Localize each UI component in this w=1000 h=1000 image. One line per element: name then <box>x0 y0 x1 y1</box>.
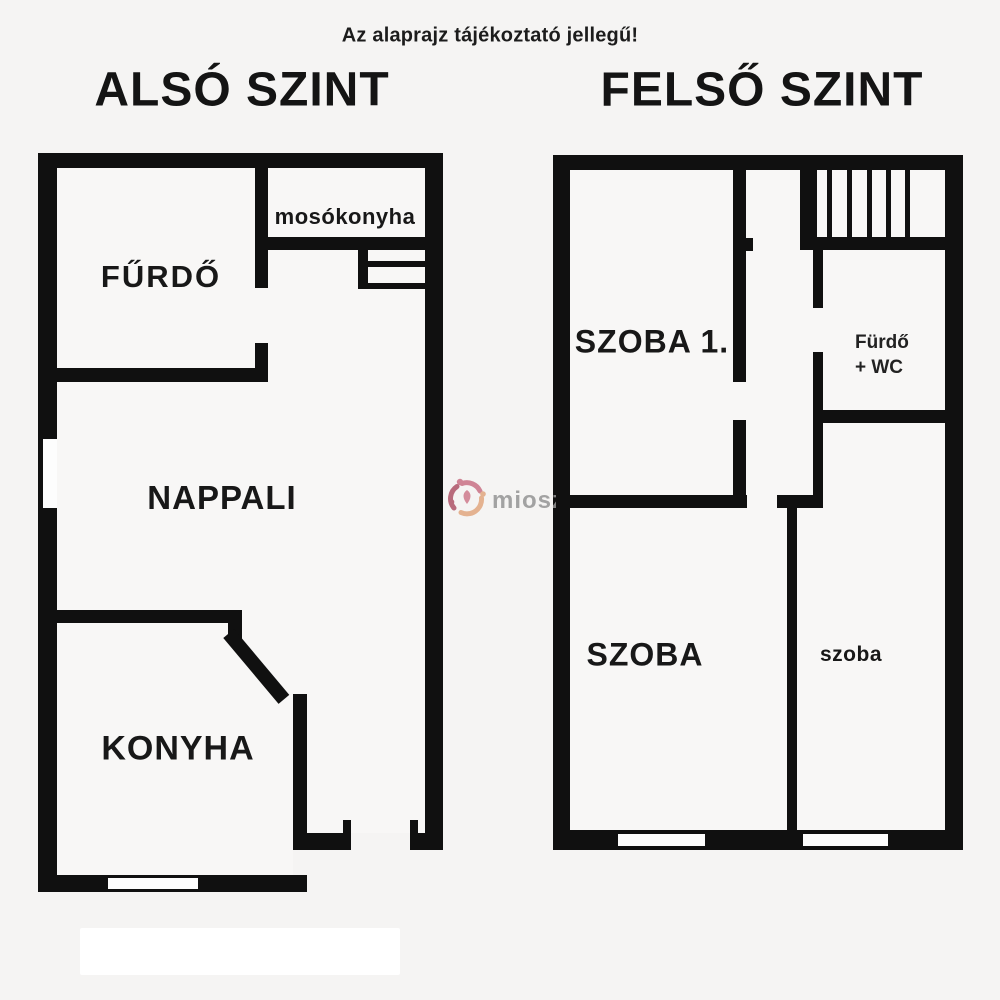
lower-floor-title: ALSÓ SZINT <box>94 63 389 118</box>
wall-stair-stub-lower <box>358 250 368 289</box>
wall-furdo-right-upper <box>255 168 268 288</box>
stair-line-2 <box>847 170 852 237</box>
wall-upper-top <box>553 155 963 170</box>
room-label-nappali: NAPPALI <box>147 479 296 517</box>
wall-corridor-bottom-left <box>553 495 747 508</box>
window-kitchen <box>108 878 198 889</box>
door-jamb-left <box>343 820 351 834</box>
stair-line-1 <box>827 170 832 237</box>
room-label-konyha: KONYHA <box>101 730 254 769</box>
lower-kitchen-interior <box>57 833 293 875</box>
room-label-szoba: SZOBA <box>587 637 704 674</box>
room-label-furdo-wc-line1: Fürdő <box>855 330 909 355</box>
stair-edge-wall <box>800 170 817 237</box>
wall-under-stairs <box>800 237 963 250</box>
wall-bath-left-upper <box>813 248 823 308</box>
stair-tread-line-1 <box>368 261 425 267</box>
stair-line-5 <box>905 170 910 237</box>
blank-label-box <box>80 928 400 975</box>
wall-upper-right <box>945 155 963 850</box>
room-label-furdo-wc-line2: + WC <box>855 355 909 380</box>
room-label-furdo: FŰRDŐ <box>101 259 221 295</box>
room-label-szoba1: SZOBA 1. <box>575 324 729 361</box>
floor-plan-image: Az alaprajz tájékoztató jellegű! ALSÓ SZ… <box>0 0 1000 1000</box>
wall-room-divider <box>787 508 797 830</box>
wall-lower-right <box>425 153 443 850</box>
room-label-mosokonyha: mosókonyha <box>275 204 416 230</box>
stair-line-3 <box>867 170 872 237</box>
wall-lower-top <box>38 153 443 168</box>
wall-upper-bottom <box>553 830 963 850</box>
wall-bath-left-lower <box>813 352 823 508</box>
wall-mosokonyha-bottom <box>255 237 443 250</box>
landing-door-jamb <box>745 238 753 251</box>
window-nappali-left <box>41 437 57 510</box>
wall-szoba1-right-upper <box>733 170 746 382</box>
miosz-watermark: miosz <box>446 477 556 525</box>
disclaimer-text: Az alaprajz tájékoztató jellegű! <box>342 25 638 48</box>
wall-konyha-top <box>55 610 228 623</box>
door-jamb-right <box>410 820 418 834</box>
window-szoba-small <box>803 834 888 846</box>
upper-floor-title: FELSŐ SZINT <box>601 63 924 118</box>
room-label-szoba-small: szoba <box>820 643 882 667</box>
miosz-watermark-text: miosz <box>492 487 556 514</box>
wall-lower-bottom-a <box>293 833 351 850</box>
room-label-furdo-wc: Fürdő + WC <box>855 330 909 380</box>
window-szoba <box>618 834 705 846</box>
wall-konyha-right <box>293 694 307 850</box>
stair-tread-line-2 <box>368 283 425 289</box>
miosz-logo-icon <box>449 479 486 514</box>
wall-furdo-bottom <box>38 368 268 382</box>
wall-lower-bottom-b <box>410 833 443 850</box>
stair-line-4 <box>886 170 891 237</box>
wall-bath-bottom <box>813 410 963 423</box>
wall-lower-left <box>38 153 57 892</box>
